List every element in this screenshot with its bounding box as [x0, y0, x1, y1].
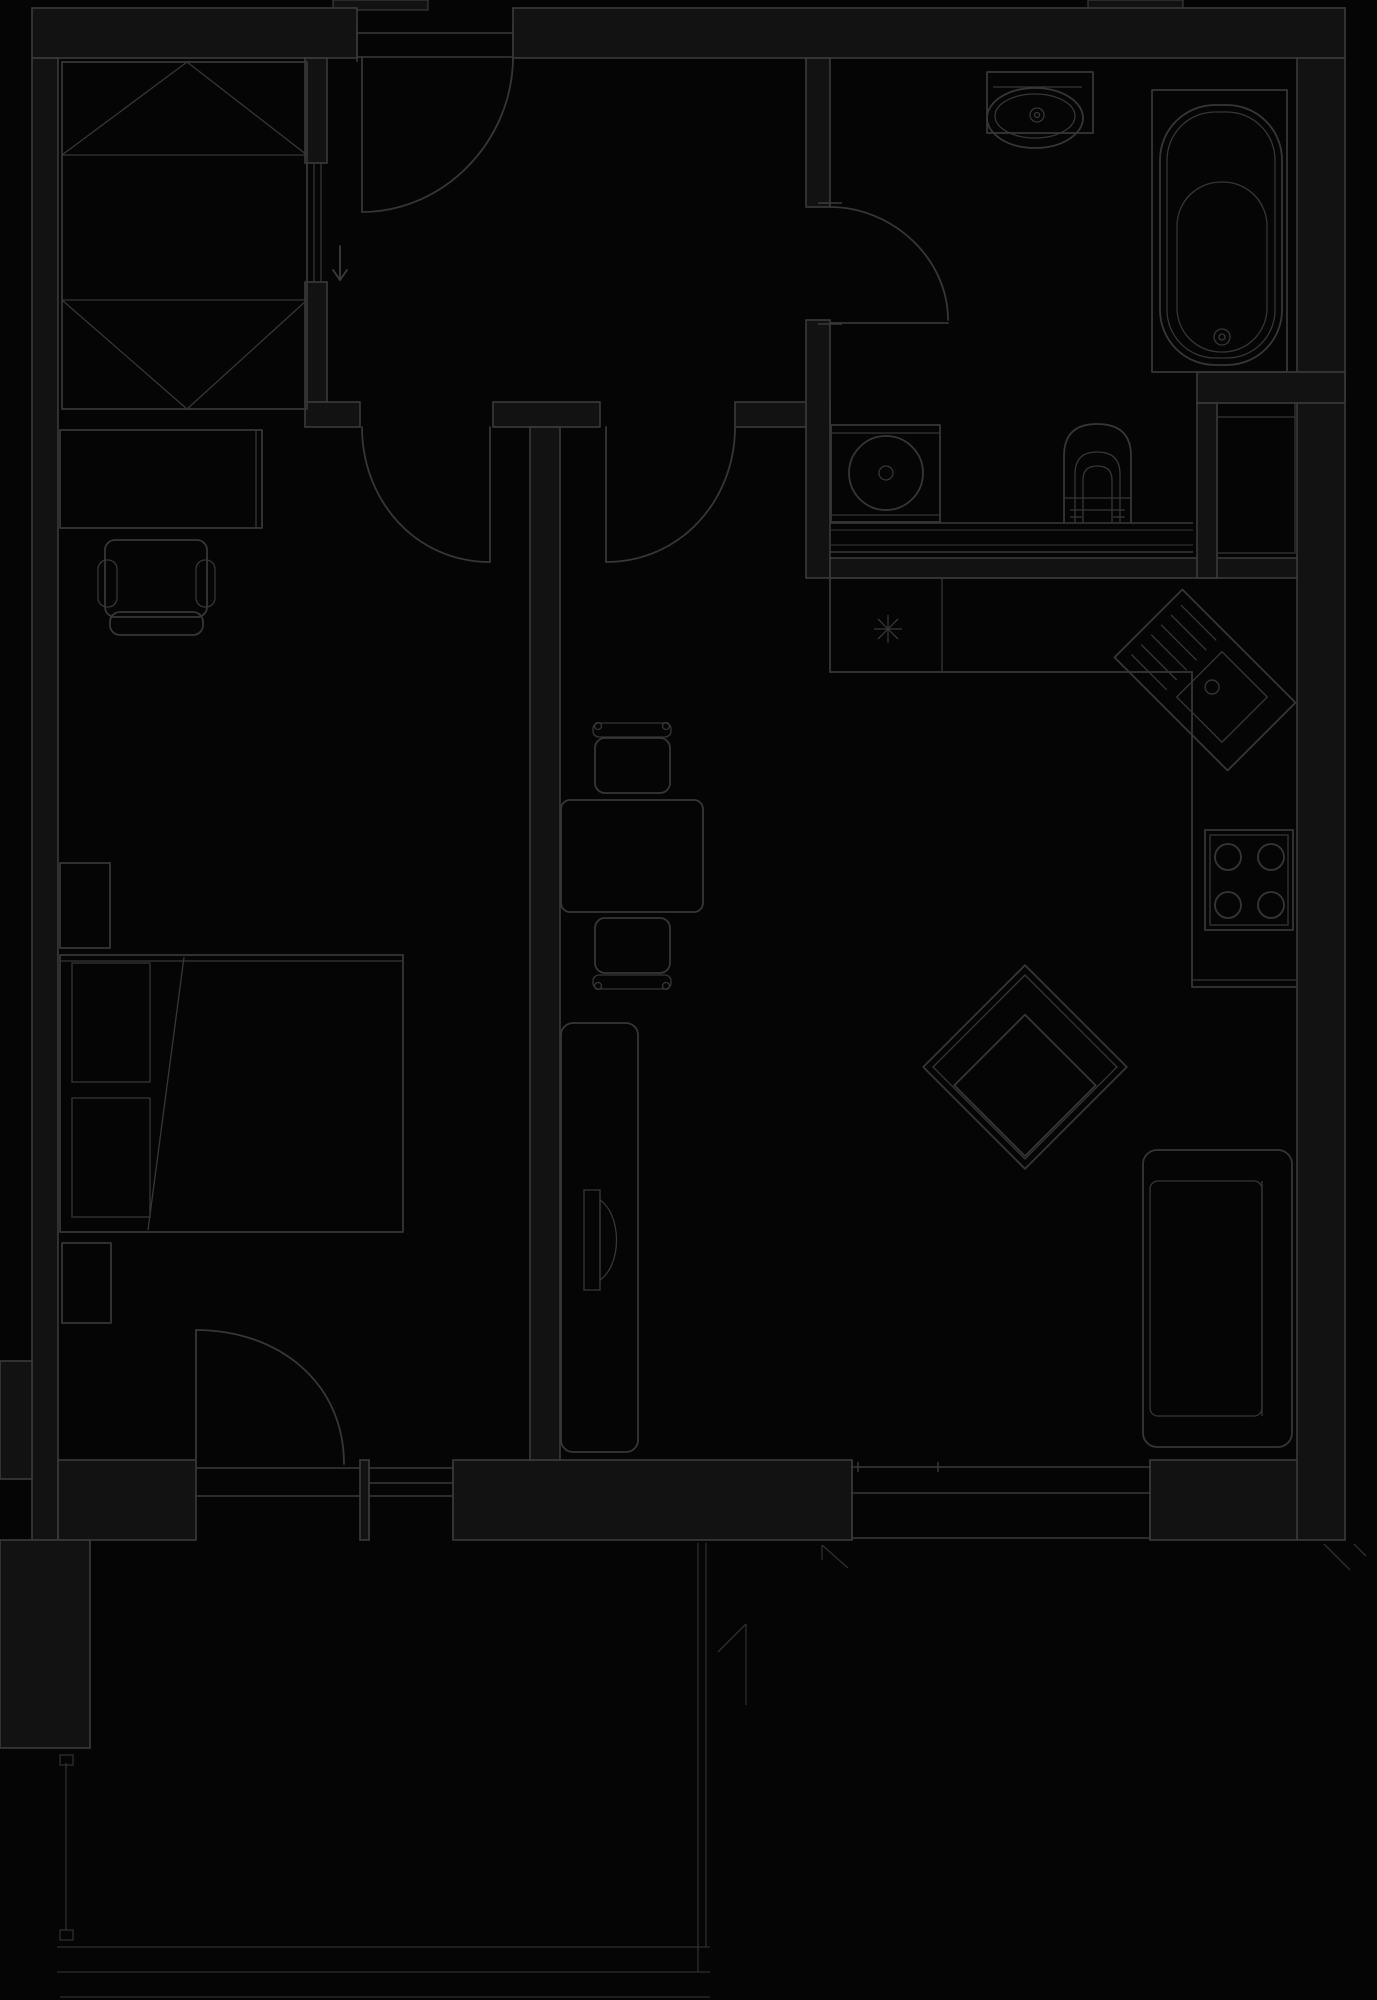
balcony-door-opening	[196, 1468, 360, 1496]
living-door	[606, 427, 735, 562]
walls	[0, 0, 1345, 1748]
living-window	[852, 1460, 1150, 1540]
shaft-left-wall	[1197, 403, 1217, 578]
wardrobe	[62, 62, 307, 409]
balcony	[57, 1543, 1366, 1997]
entry-door	[362, 57, 513, 212]
sliding-door	[307, 163, 321, 282]
dining-chair-top	[593, 723, 671, 794]
nightstand-upper	[60, 863, 110, 948]
utility-shaft	[1217, 403, 1295, 553]
bedroom-living-divider-wall	[530, 427, 560, 1460]
corner-sink	[1114, 589, 1295, 770]
bedroom-window	[369, 1460, 453, 1540]
dining-table	[561, 800, 703, 912]
bottom-wall-seg4	[1150, 1460, 1297, 1540]
washing-machine	[831, 425, 940, 522]
floor-plan-page	[0, 0, 1377, 2000]
nightstand-lower	[62, 1243, 111, 1323]
dining-chair-bottom	[593, 918, 671, 990]
bedroom-door	[362, 427, 490, 562]
stove	[1205, 830, 1293, 930]
balcony-railing	[57, 1543, 710, 1997]
toilet	[1064, 424, 1131, 523]
armchair	[923, 965, 1127, 1169]
hall-bottom-seg2	[493, 402, 600, 427]
star-symbol	[874, 615, 902, 643]
drainboard-lines	[1131, 605, 1216, 690]
doors	[196, 57, 948, 1464]
corner-block	[0, 1540, 90, 1748]
shaft-top-wall	[1197, 372, 1345, 403]
desk	[60, 430, 262, 528]
bathroom-fixtures	[831, 72, 1295, 553]
bathroom-kitchen-wall	[830, 558, 1297, 578]
openings	[196, 26, 1193, 1540]
left-pier	[0, 1361, 32, 1479]
bathroom-door	[818, 203, 948, 324]
entry-opening	[357, 26, 513, 62]
right-wall	[1297, 58, 1345, 1540]
desk-chair	[98, 540, 215, 635]
entry-arrow	[333, 246, 347, 280]
sofa	[1143, 1150, 1292, 1447]
bathroom-wall-upper	[806, 58, 830, 207]
balcony-door	[196, 1330, 344, 1464]
left-wall	[32, 58, 58, 1540]
balcony-door-swing-ticks	[718, 1544, 1366, 1705]
bathroom-partition-lines	[830, 523, 1193, 552]
living-furniture	[561, 723, 1292, 1453]
bottom-wall-seg2	[360, 1460, 369, 1540]
hall-wall-upper	[305, 58, 327, 163]
hall-wall-lower	[305, 282, 327, 402]
floor-plan-drawing	[0, 0, 1377, 2000]
bedroom-furniture	[60, 430, 403, 1323]
tv-sideboard	[561, 1023, 638, 1452]
dishwasher	[874, 615, 902, 643]
top-wall-right	[513, 8, 1345, 58]
bathtub	[1152, 90, 1287, 372]
bottom-wall-seg3	[453, 1460, 852, 1540]
top-wall-left	[32, 8, 357, 58]
tv	[584, 1190, 617, 1290]
washbasin	[987, 72, 1093, 148]
double-bed	[60, 955, 403, 1232]
bathroom-wall-lower	[806, 320, 830, 578]
kitchen-counter	[830, 578, 1297, 987]
bottom-wall-seg1	[58, 1460, 196, 1540]
kitchen-fixtures	[830, 578, 1297, 987]
hall-bottom-seg1	[305, 402, 360, 427]
